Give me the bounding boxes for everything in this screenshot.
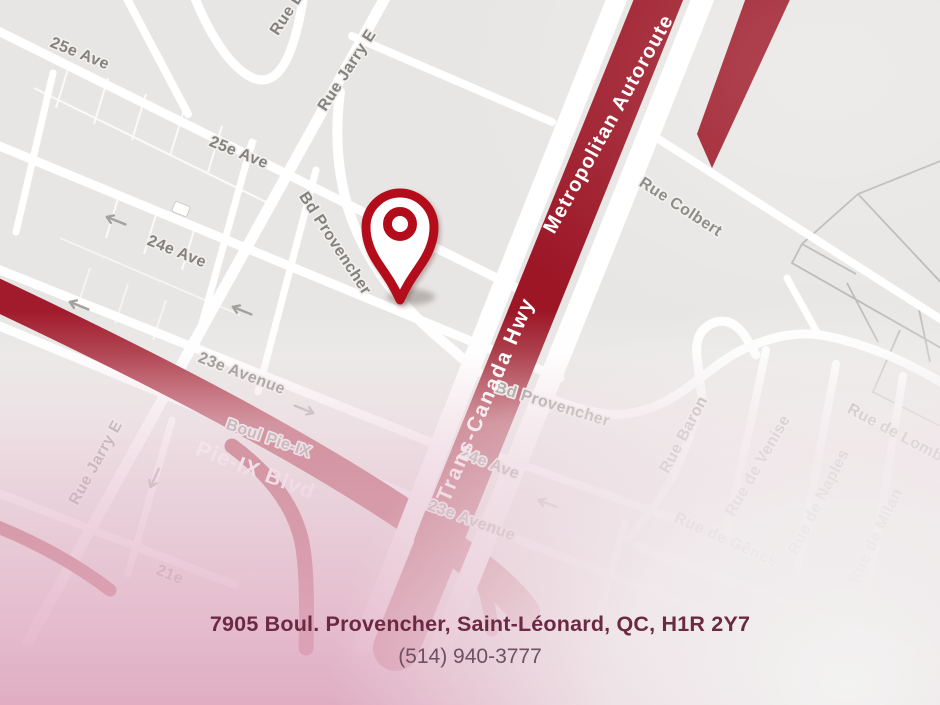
map-view[interactable]: 25e Ave Rue B Rue Jarry E 25e Ave Bd Pro… bbox=[0, 0, 940, 705]
location-footer: 7905 Boul. Provencher, Saint-Léonard, QC… bbox=[0, 612, 940, 669]
map-canvas[interactable]: 25e Ave Rue B Rue Jarry E 25e Ave Bd Pro… bbox=[0, 0, 940, 705]
phone-line: (514) 940-3777 bbox=[0, 645, 940, 669]
overlay-white-corner bbox=[0, 0, 940, 705]
address-line: 7905 Boul. Provencher, Saint-Léonard, QC… bbox=[10, 612, 940, 637]
